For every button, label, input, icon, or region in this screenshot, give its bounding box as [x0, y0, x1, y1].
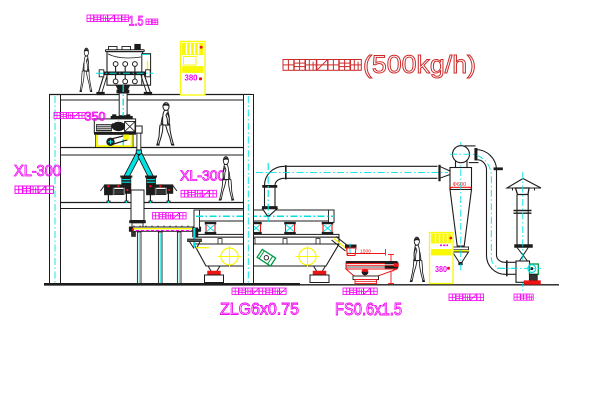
svg-text:FS0.6x1.5: FS0.6x1.5	[335, 299, 402, 319]
svg-text:380: 380	[185, 74, 198, 83]
svg-text:1500: 1500	[360, 249, 371, 255]
svg-text:XL-300: XL-300	[14, 163, 61, 180]
svg-text:XL-300: XL-300	[180, 168, 226, 185]
svg-text:1.5: 1.5	[129, 13, 144, 29]
svg-text:380: 380	[435, 265, 447, 274]
svg-text:350: 350	[85, 110, 106, 124]
svg-text:ZLG6x0.75: ZLG6x0.75	[220, 300, 299, 319]
svg-text:(500kg/h): (500kg/h)	[363, 51, 476, 79]
